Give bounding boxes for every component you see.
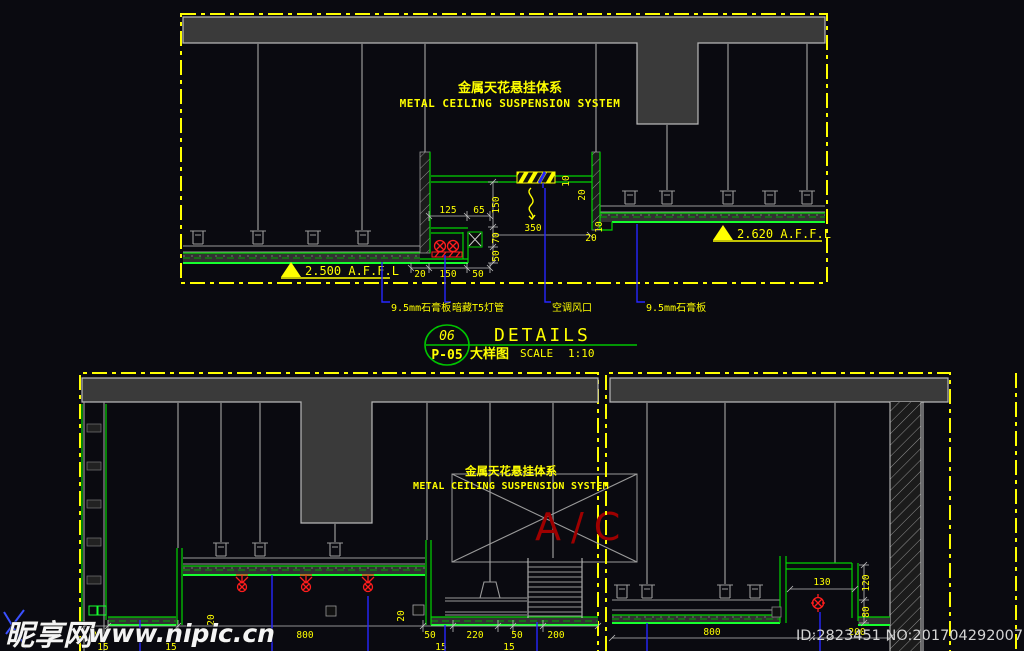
dim-10b: 10	[594, 221, 605, 233]
sprinkler-icon	[362, 575, 374, 592]
br-ceiling-band	[612, 615, 890, 625]
level-right-text: 2.620 A.F.F.L	[737, 227, 831, 241]
title-block: 06 P-05 DETAILS 大样图 SCALE 1:10	[425, 325, 637, 365]
bl-dim-15d: 15	[503, 642, 514, 651]
sprinkler-icon	[300, 575, 312, 592]
dim-70v: 70	[491, 232, 502, 244]
bl-dim-20b: 20	[396, 610, 407, 622]
air-vent-icon	[517, 172, 555, 183]
detail-number: 06	[439, 329, 455, 344]
junction-box-a	[326, 606, 336, 616]
bl-title-en: METAL CEILING SUSPENSION SYSTEM	[413, 481, 609, 492]
dim-125: 125	[439, 205, 456, 216]
sprinkler-icon	[236, 575, 248, 592]
details-title: DETAILS	[494, 325, 591, 346]
sheet-number: P-05	[431, 348, 462, 363]
cove-lamp-icon	[432, 241, 462, 258]
scale-value: 1:10	[568, 347, 595, 360]
br-dim-130: 130	[813, 577, 830, 588]
dim-20a: 20	[577, 189, 588, 201]
br-dim-120: 120	[861, 574, 872, 591]
dim-20c: 20	[414, 269, 426, 280]
br-dim-800: 800	[703, 627, 720, 638]
level-left-text: 2.500 A.F.F.L	[305, 264, 399, 278]
bottom-left-detail: A/C 金属天花悬挂体系 METAL CEILING SUSPENSION SY…	[80, 373, 637, 651]
dim-350: 350	[524, 223, 541, 234]
dim-150b: 150	[439, 269, 456, 280]
bottom-right-detail: 130 120 80 800 200	[606, 373, 1016, 651]
bl-dim-800: 800	[296, 630, 313, 641]
label-gypsum-left: 9.5mm石膏板	[391, 301, 451, 314]
label-ac-vent: 空调风口	[552, 301, 592, 314]
bl-dim-50a: 50	[424, 630, 436, 641]
bl-soffit-right	[431, 617, 598, 625]
dim-150v: 150	[491, 196, 502, 213]
br-dim-80: 80	[861, 606, 872, 618]
br-slab	[610, 378, 948, 402]
right-ceiling-band	[600, 206, 825, 222]
top-title-en: METAL CEILING SUSPENSION SYSTEM	[400, 97, 621, 110]
stud-wall	[82, 402, 106, 651]
bl-dim-200: 200	[547, 630, 564, 641]
dim-65: 65	[473, 205, 484, 216]
br-cove-pocket	[772, 556, 858, 623]
cad-canvas: 2.500 A.F.F.L 2.620 A.F.F.L 125 65 150 7…	[0, 0, 1024, 651]
watermark-brand: 昵享网	[5, 618, 96, 651]
hatched-wall	[890, 402, 923, 651]
level-marker-left: 2.500 A.F.F.L	[281, 262, 399, 278]
bl-slab-beam	[82, 378, 598, 523]
top-title-cn: 金属天花悬挂体系	[457, 80, 562, 96]
level-marker-right: 2.620 A.F.F.L	[713, 225, 831, 241]
top-detail: 2.500 A.F.F.L 2.620 A.F.F.L 125 65 150 7…	[181, 14, 831, 314]
details-title-cn: 大样图	[470, 346, 509, 362]
bl-title-cn: 金属天花悬挂体系	[464, 464, 557, 478]
ac-label: A/C	[535, 505, 630, 549]
top-detail-border	[181, 14, 827, 283]
dim-50b: 50	[472, 269, 484, 280]
bl-main-ceiling-band	[183, 558, 425, 575]
label-gypsum-right: 9.5mm石膏板	[646, 301, 706, 314]
dim-10a: 10	[561, 175, 572, 187]
louver-grille-icon	[528, 558, 582, 618]
suspended-track	[445, 582, 527, 615]
scale-label: SCALE	[520, 347, 553, 360]
bl-dim-220: 220	[466, 630, 483, 641]
drawing-svg: 2.500 A.F.F.L 2.620 A.F.F.L 125 65 150 7…	[0, 0, 1024, 651]
watermark-site: www.nipic.cn	[88, 619, 275, 648]
br-lamp-icon	[811, 594, 825, 612]
dim-50v: 50	[491, 250, 502, 262]
image-id-text: ID:2823451 NO:20170429200750603000	[796, 628, 1024, 644]
br-hanger-rods	[647, 402, 835, 584]
bl-dim-50b: 50	[511, 630, 523, 641]
label-concealed-lamp: 暗藏T5灯管	[452, 301, 504, 314]
dim-20b: 20	[585, 233, 597, 244]
airflow-icon	[529, 188, 535, 219]
junction-box-b	[413, 605, 424, 615]
